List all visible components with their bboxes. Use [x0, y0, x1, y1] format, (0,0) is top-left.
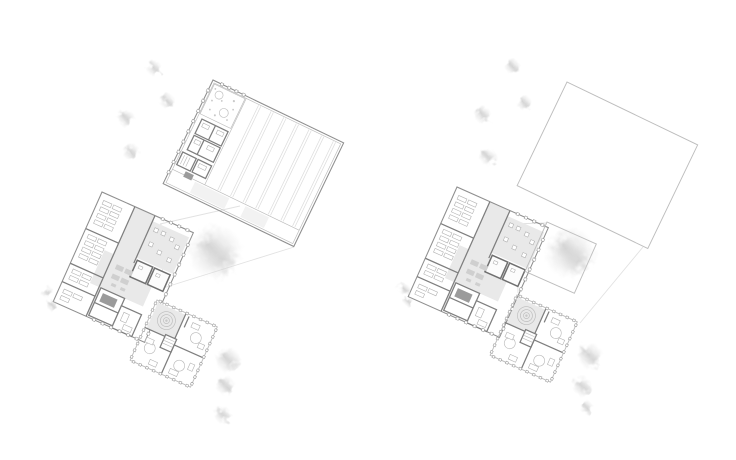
- hall-roof-outline: [517, 82, 698, 249]
- site-plan-drawing: [0, 0, 736, 460]
- site-plan-page: [0, 0, 736, 460]
- plan-variant-b: [398, 59, 698, 414]
- pavilion-building: [489, 293, 579, 383]
- plan-variant-a: [40, 60, 344, 424]
- pavilion-building: [129, 298, 219, 388]
- hall-building-detailed: [162, 78, 344, 246]
